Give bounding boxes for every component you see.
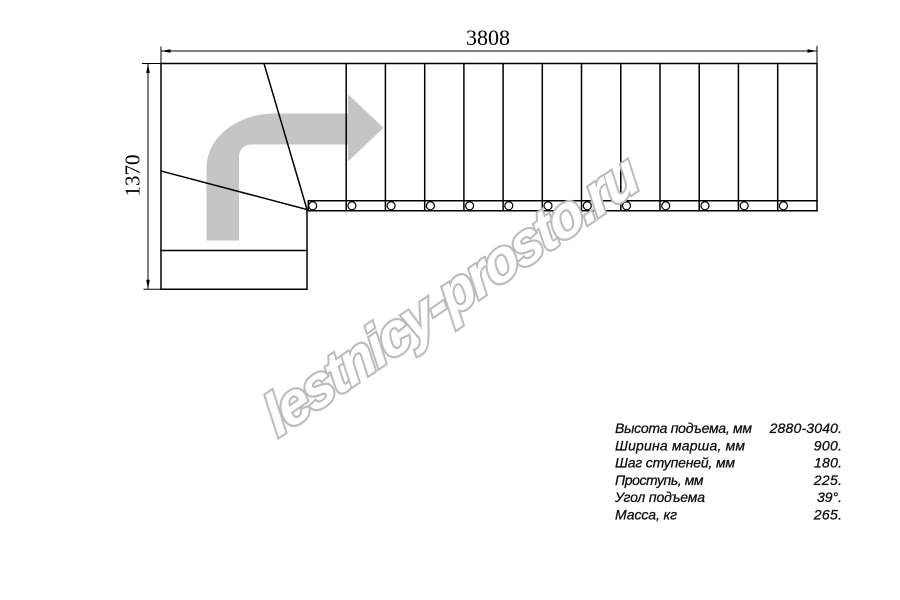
svg-text:39°.: 39°.: [817, 489, 842, 505]
svg-text:3808: 3808: [466, 25, 510, 50]
svg-text:Проступь, мм: Проступь, мм: [615, 472, 704, 488]
svg-text:2880-3040.: 2880-3040.: [769, 420, 842, 436]
svg-text:Высота подъема, мм: Высота подъема, мм: [615, 420, 752, 436]
svg-text:225.: 225.: [813, 472, 842, 488]
svg-text:265.: 265.: [813, 507, 842, 523]
svg-text:180.: 180.: [814, 455, 842, 471]
svg-text:Масса, кг: Масса, кг: [615, 507, 677, 523]
svg-text:Угол подъема: Угол подъема: [614, 489, 705, 505]
svg-text:Ширина марша, мм: Ширина марша, мм: [615, 437, 745, 453]
svg-text:1370: 1370: [121, 155, 145, 197]
svg-text:900.: 900.: [814, 437, 842, 453]
svg-text:Шаг ступеней, мм: Шаг ступеней, мм: [615, 455, 735, 471]
